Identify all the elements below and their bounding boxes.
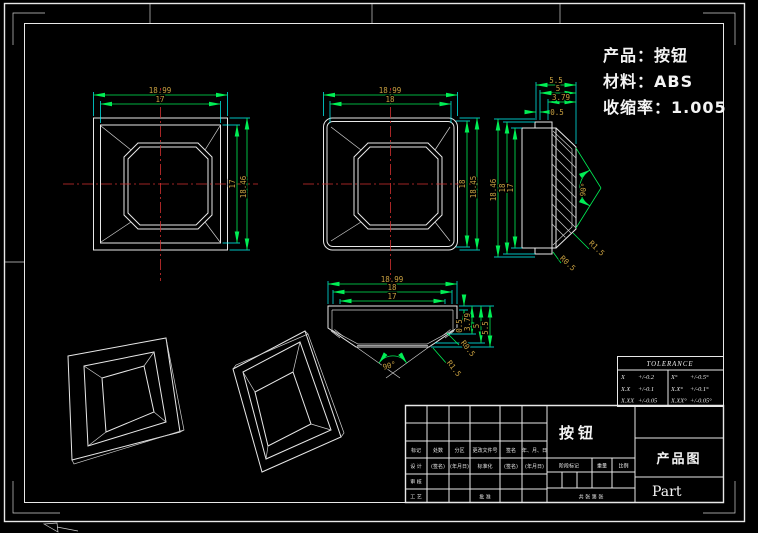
product-label: 产品：按钮 — [603, 46, 688, 65]
dim-sect-w2: 18 — [387, 283, 397, 292]
tb-standard: 标准化 — [477, 463, 492, 470]
tb-design-sign: (签名) — [431, 463, 445, 470]
tol-r3c2: X.XX° — [670, 398, 687, 405]
material-label: 材料：ABS — [603, 72, 693, 91]
dim-sect-r1: R1.5 — [445, 359, 463, 379]
tb-mark: 标记 — [411, 447, 421, 454]
dim-bottom-width-inner: 18 — [385, 95, 395, 104]
cursor-mark — [44, 523, 78, 532]
tb-process: 工 艺 — [410, 495, 422, 501]
tol-r3c1: X.XX — [620, 398, 635, 405]
tb-drawing-type: 产品图 — [656, 451, 701, 467]
tol-r1c2: X° — [670, 374, 678, 381]
info-block: 产品：按钮 材料：ABS 收缩率：1.005 — [603, 46, 727, 117]
tol-r2v1: +/-0.1 — [638, 386, 654, 393]
tol-r3v1: +/-0.05 — [638, 398, 657, 405]
view-bottom: 18.99 18 18 18.45 — [303, 86, 480, 281]
dim-side-angle: 90° — [578, 182, 589, 197]
view-bottom-centerlines — [303, 88, 478, 281]
dim-sect-r2: R0.5 — [459, 339, 477, 359]
view-top: 18.99 17 17 18.46 — [63, 86, 258, 281]
dim-bottom-height-inner: 18 — [458, 179, 467, 189]
dim-bottom-width-outer: 18.99 — [379, 86, 402, 95]
tb-stage: 阶段标记 — [559, 463, 579, 470]
iso-view-right — [233, 331, 344, 472]
dim-sect-angle: 90° — [382, 359, 397, 371]
dim-side-h1: 18.46 — [489, 178, 498, 201]
dim-bottom-height-outer: 18.45 — [469, 176, 478, 199]
tolerance-title: TOLERANCE — [646, 361, 693, 368]
tb-count: 处数 — [433, 447, 443, 454]
tb-sheet: 共 张 第 张 — [579, 494, 604, 501]
tb-std-date: (年月日) — [525, 463, 544, 470]
view-side: 5.5 5 3.79 0.5 18.46 18 17 90° R1.5 R0.5 — [489, 76, 606, 273]
tolerance-table: TOLERANCE X +/-0.2 X° +/-0.5° X.X +/-0.1… — [618, 357, 724, 407]
dim-side-w2: 5 — [556, 84, 561, 93]
tb-part-code: Part — [652, 484, 682, 500]
view-section: 18.99 18 17 0.5 3.79 5 5.5 90° R0.5 R1.5 — [328, 275, 494, 378]
dim-side-w3: 3.79 — [552, 93, 570, 102]
tb-change-file: 更改文件号 — [472, 447, 497, 454]
dim-top-height-outer: 18.46 — [239, 175, 248, 198]
dim-sect-v4: 5.5 — [481, 321, 490, 335]
view-section-dimensions: 18.99 18 17 0.5 3.79 5 5.5 90° R0.5 R1.5 — [328, 275, 494, 378]
dim-sect-v2: 3.79 — [463, 313, 472, 331]
view-side-dimensions: 5.5 5 3.79 0.5 18.46 18 17 90° R1.5 R0.5 — [489, 76, 606, 273]
tol-r2c1: X.X — [620, 386, 631, 393]
dim-side-h3: 17 — [506, 183, 515, 192]
tol-r3v2: +/-0.05° — [690, 398, 712, 405]
tb-scale: 比例 — [618, 463, 628, 470]
tol-r2c2: X.X° — [670, 386, 683, 393]
shrinkage-label: 收缩率：1.005 — [603, 98, 727, 117]
corner-mark-bottom-right — [703, 481, 735, 513]
iso-view-left — [68, 338, 184, 464]
tb-design: 设 计 — [410, 463, 422, 470]
tb-approve: 批 准 — [479, 494, 491, 501]
tb-design-date: (年月日) — [450, 463, 469, 470]
tol-r2v2: +/-0.1° — [690, 386, 709, 393]
dim-side-w4: 0.5 — [550, 108, 564, 117]
tb-std-sign: (签名) — [504, 463, 518, 470]
dim-sect-w3: 17 — [387, 292, 396, 301]
tol-r1v2: +/-0.5° — [690, 374, 709, 381]
tb-date: 年、月、日 — [522, 447, 547, 454]
dim-top-width-outer: 18.99 — [149, 86, 172, 95]
corner-mark-top-left — [13, 13, 45, 45]
tb-part-name: 按钮 — [559, 424, 597, 442]
tol-r1c1: X — [620, 374, 626, 381]
tb-audit: 审 核 — [410, 479, 422, 486]
tb-sign: 签名 — [506, 447, 516, 454]
dim-top-height-inner: 17 — [228, 179, 237, 188]
cad-canvas: 产品：按钮 材料：ABS 收缩率：1.005 18.99 17 17 18.46 — [0, 0, 758, 533]
cad-drawing-window: 产品：按钮 材料：ABS 收缩率：1.005 18.99 17 17 18.46 — [0, 0, 758, 533]
tb-weight: 重量 — [597, 463, 607, 470]
dim-side-r1: R1.5 — [587, 239, 606, 258]
tb-zone: 分区 — [454, 447, 464, 454]
tol-r1v1: +/-0.2 — [638, 374, 655, 381]
dim-sect-v3: 5 — [472, 324, 481, 329]
dim-side-r2: R0.5 — [558, 254, 577, 273]
dim-top-width-inner: 17 — [155, 95, 164, 104]
title-block: 标记 处数 分区 更改文件号 签名 年、月、日 设 计 (签名) (年月日) 标… — [406, 406, 724, 503]
corner-mark-top-right — [703, 13, 735, 45]
corner-mark-bottom-left — [13, 481, 60, 513]
